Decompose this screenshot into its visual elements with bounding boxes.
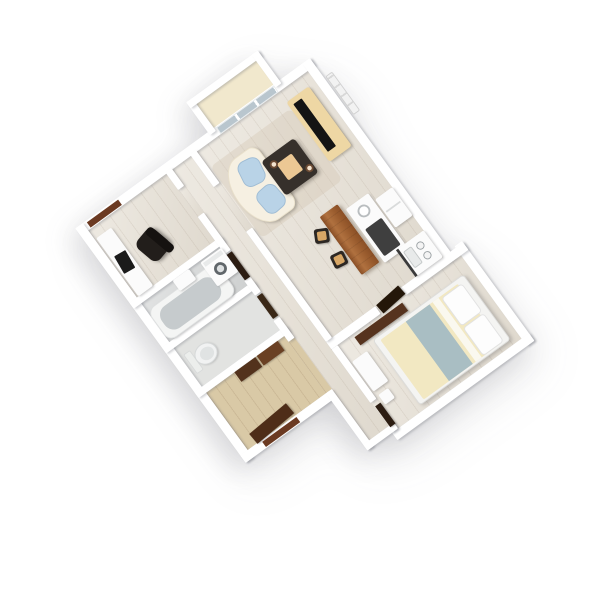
bar-stool-1 [314, 228, 331, 245]
island-sink [355, 202, 373, 220]
floorplan-scene [0, 0, 600, 600]
fridge-door-line [386, 201, 401, 213]
tap-knob-1 [415, 240, 427, 252]
tap-knob-2 [422, 249, 434, 261]
washer-door [211, 260, 229, 278]
bar-stool-seat [317, 231, 327, 241]
plan-shadow-wrapper [0, 0, 600, 600]
bar-stool-seat [333, 254, 345, 266]
apartment-floorplan [54, 18, 539, 523]
toilet-seat [197, 344, 216, 363]
